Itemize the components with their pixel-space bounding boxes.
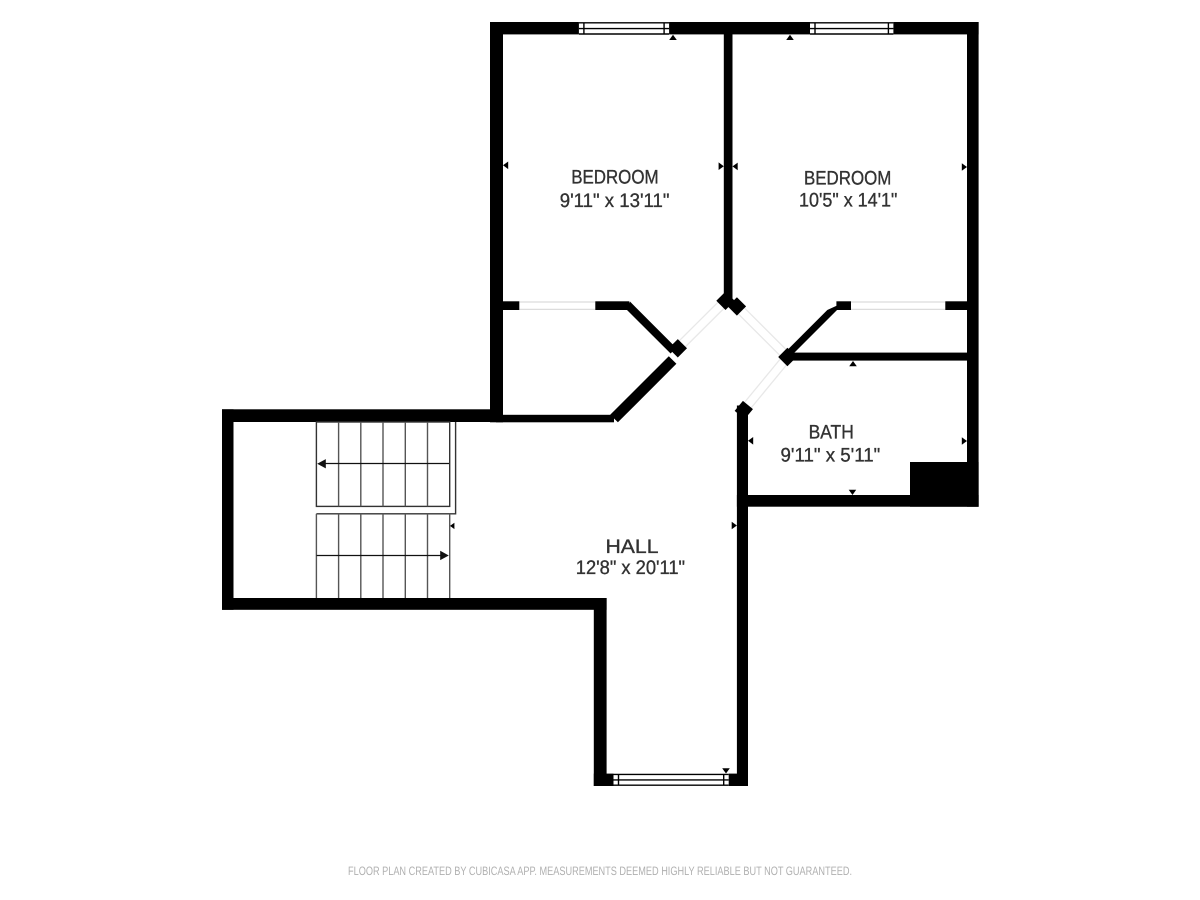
svg-text:12'8" x 20'11": 12'8" x 20'11" bbox=[576, 557, 685, 579]
svg-text:9'11" x 5'11": 9'11" x 5'11" bbox=[781, 445, 881, 467]
svg-text:10'5" x 14'1": 10'5" x 14'1" bbox=[799, 190, 897, 212]
svg-text:9'11" x 13'11": 9'11" x 13'11" bbox=[560, 190, 670, 212]
svg-text:FLOOR PLAN CREATED BY CUBICASA: FLOOR PLAN CREATED BY CUBICASA APP. MEAS… bbox=[348, 864, 852, 878]
svg-text:BATH: BATH bbox=[809, 421, 854, 443]
svg-text:HALL: HALL bbox=[606, 536, 659, 558]
svg-text:BEDROOM: BEDROOM bbox=[571, 166, 658, 188]
svg-text:BEDROOM: BEDROOM bbox=[804, 167, 891, 189]
